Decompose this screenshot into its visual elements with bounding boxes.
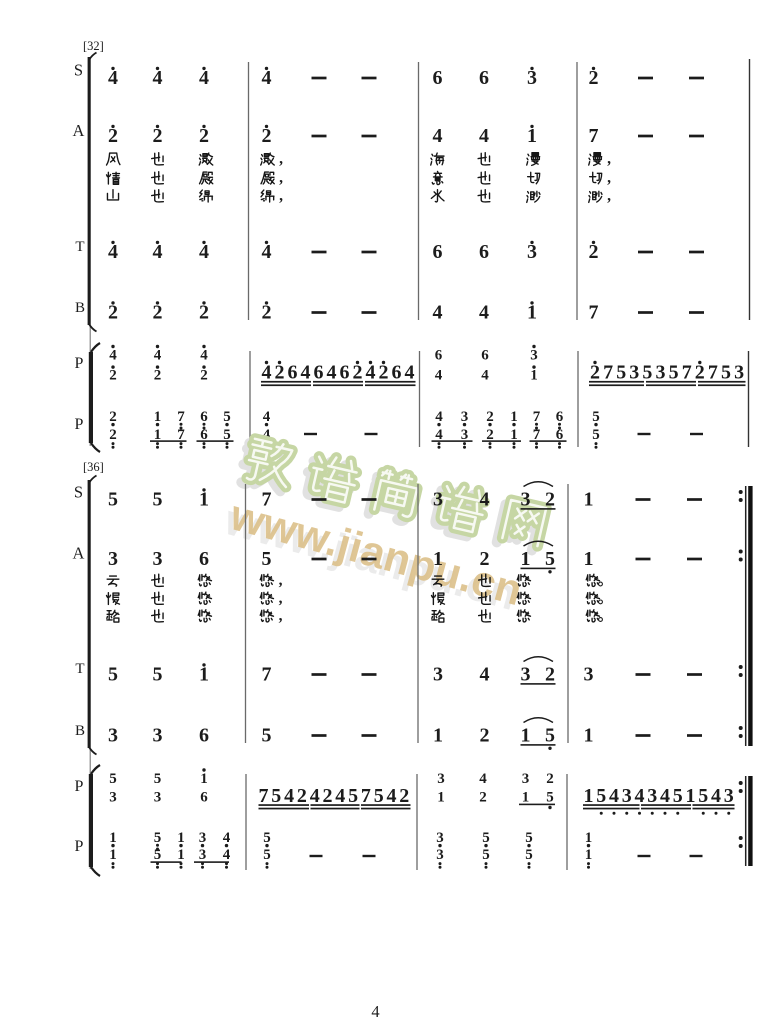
svg-text:7: 7 xyxy=(177,409,185,425)
svg-text:5: 5 xyxy=(153,664,163,686)
svg-text:5: 5 xyxy=(698,785,708,807)
svg-text:4: 4 xyxy=(371,1002,379,1021)
svg-text:2: 2 xyxy=(546,771,554,787)
svg-text:,: , xyxy=(279,170,283,187)
svg-text:2: 2 xyxy=(154,367,162,383)
svg-text:6: 6 xyxy=(199,548,209,570)
svg-text:B: B xyxy=(75,723,85,739)
svg-text:1: 1 xyxy=(177,830,185,846)
svg-text:,: , xyxy=(607,188,611,205)
svg-text:2: 2 xyxy=(199,302,209,324)
svg-text:3: 3 xyxy=(521,489,531,511)
svg-text:5: 5 xyxy=(592,427,600,443)
svg-text:5: 5 xyxy=(154,771,162,787)
svg-text:5: 5 xyxy=(262,548,272,570)
svg-text:7: 7 xyxy=(262,664,272,686)
svg-text:5: 5 xyxy=(525,847,533,863)
svg-text:1: 1 xyxy=(521,725,531,747)
svg-text:2: 2 xyxy=(108,125,118,147)
svg-text:2: 2 xyxy=(480,725,490,747)
svg-text:4: 4 xyxy=(153,241,163,263)
svg-text:6: 6 xyxy=(200,790,208,806)
svg-text:7: 7 xyxy=(262,489,272,511)
svg-text:S: S xyxy=(74,483,83,502)
svg-text:3: 3 xyxy=(521,664,531,686)
svg-text:,: , xyxy=(607,170,611,187)
svg-text:1: 1 xyxy=(109,847,117,863)
svg-text:5: 5 xyxy=(592,409,600,425)
svg-text:1: 1 xyxy=(177,847,185,863)
svg-text:2: 2 xyxy=(695,362,705,384)
svg-text:4: 4 xyxy=(660,785,670,807)
svg-text:2: 2 xyxy=(399,785,409,807)
svg-text:4: 4 xyxy=(108,67,118,89)
svg-text:[32]: [32] xyxy=(83,39,104,53)
svg-text:5: 5 xyxy=(669,362,679,384)
svg-text:5: 5 xyxy=(721,362,731,384)
svg-text:1: 1 xyxy=(585,847,593,863)
svg-text:5: 5 xyxy=(673,785,683,807)
svg-text:5: 5 xyxy=(154,847,162,863)
svg-text:3: 3 xyxy=(622,785,632,807)
svg-text:3: 3 xyxy=(734,362,744,384)
svg-text:7: 7 xyxy=(708,362,718,384)
svg-text:4: 4 xyxy=(262,241,272,263)
svg-text:2: 2 xyxy=(590,362,600,384)
svg-text:2: 2 xyxy=(589,67,599,89)
svg-text:1: 1 xyxy=(584,785,594,807)
svg-text:3: 3 xyxy=(724,785,734,807)
svg-text:3: 3 xyxy=(154,790,162,806)
svg-text:4: 4 xyxy=(223,830,231,846)
svg-text:1: 1 xyxy=(527,125,537,147)
svg-text:7: 7 xyxy=(361,785,371,807)
svg-text:4: 4 xyxy=(435,409,443,425)
svg-text:4: 4 xyxy=(263,409,271,425)
svg-text:3: 3 xyxy=(656,362,666,384)
svg-text:2: 2 xyxy=(153,125,163,147)
svg-text:4: 4 xyxy=(479,302,489,324)
svg-text:1: 1 xyxy=(433,548,443,570)
svg-text:4: 4 xyxy=(480,664,490,686)
svg-text:2: 2 xyxy=(109,367,117,383)
svg-text:1: 1 xyxy=(584,548,594,570)
svg-text:3: 3 xyxy=(108,548,118,570)
svg-text:5: 5 xyxy=(263,830,271,846)
svg-text:5: 5 xyxy=(616,362,626,384)
svg-text:3: 3 xyxy=(522,771,530,787)
svg-text:3: 3 xyxy=(527,67,537,89)
svg-text:4: 4 xyxy=(199,241,209,263)
svg-text:3: 3 xyxy=(199,847,207,863)
svg-text:6: 6 xyxy=(199,725,209,747)
svg-text:1: 1 xyxy=(199,489,209,511)
svg-text:5: 5 xyxy=(545,725,555,747)
svg-text:B: B xyxy=(75,300,85,316)
svg-text:1: 1 xyxy=(522,790,530,806)
svg-text:3: 3 xyxy=(647,785,657,807)
svg-text:5: 5 xyxy=(482,830,490,846)
svg-text:2: 2 xyxy=(479,790,487,806)
svg-text:4: 4 xyxy=(284,785,294,807)
svg-text:2: 2 xyxy=(200,367,208,383)
svg-text:4: 4 xyxy=(405,362,415,384)
svg-text:4: 4 xyxy=(481,367,489,383)
svg-text:6: 6 xyxy=(288,362,298,384)
svg-text:1: 1 xyxy=(585,830,593,846)
svg-text:4: 4 xyxy=(108,241,118,263)
svg-text:5: 5 xyxy=(153,489,163,511)
svg-text:4: 4 xyxy=(223,847,231,863)
svg-text:2: 2 xyxy=(262,302,272,324)
svg-text:3: 3 xyxy=(433,489,443,511)
svg-text:3: 3 xyxy=(629,362,639,384)
svg-text:2: 2 xyxy=(589,241,599,263)
svg-text:1: 1 xyxy=(199,664,209,686)
svg-text:4: 4 xyxy=(609,785,619,807)
svg-text:1: 1 xyxy=(437,790,445,806)
svg-text:A: A xyxy=(73,121,85,140)
svg-text:6: 6 xyxy=(481,348,489,364)
svg-text:2: 2 xyxy=(379,362,389,384)
svg-text:2: 2 xyxy=(109,427,117,443)
svg-text:6: 6 xyxy=(392,362,402,384)
svg-text:1: 1 xyxy=(200,771,208,787)
svg-text:3: 3 xyxy=(153,725,163,747)
svg-text:,: , xyxy=(279,188,283,205)
svg-text:2: 2 xyxy=(353,362,363,384)
svg-text:T: T xyxy=(75,239,84,255)
svg-text:2: 2 xyxy=(323,785,333,807)
svg-text:,: , xyxy=(279,151,283,168)
svg-text:4: 4 xyxy=(479,771,487,787)
svg-text:4: 4 xyxy=(109,348,117,364)
svg-text:3: 3 xyxy=(584,664,594,686)
svg-text:5: 5 xyxy=(108,664,118,686)
svg-text:P: P xyxy=(75,355,84,372)
svg-text:6: 6 xyxy=(433,241,443,263)
svg-text:7: 7 xyxy=(533,409,541,425)
svg-text:3: 3 xyxy=(461,409,469,425)
svg-text:4: 4 xyxy=(301,362,311,384)
svg-text:3: 3 xyxy=(530,348,538,364)
svg-text:4: 4 xyxy=(435,367,443,383)
svg-text:7: 7 xyxy=(259,785,269,807)
svg-text:4: 4 xyxy=(479,125,489,147)
svg-text:5: 5 xyxy=(642,362,652,384)
svg-text:5: 5 xyxy=(546,790,554,806)
svg-text:6: 6 xyxy=(340,362,350,384)
svg-text:,: , xyxy=(279,572,283,589)
svg-text:2: 2 xyxy=(545,664,555,686)
svg-text:2: 2 xyxy=(486,409,494,425)
svg-text:2: 2 xyxy=(275,362,285,384)
svg-text:4: 4 xyxy=(335,785,345,807)
svg-text:6: 6 xyxy=(200,409,208,425)
svg-text:1: 1 xyxy=(109,830,117,846)
svg-text:2: 2 xyxy=(199,125,209,147)
svg-text:5: 5 xyxy=(223,409,231,425)
svg-text:7: 7 xyxy=(682,362,692,384)
svg-text:4: 4 xyxy=(310,785,320,807)
svg-text:4: 4 xyxy=(711,785,721,807)
svg-text:3: 3 xyxy=(153,548,163,570)
svg-text:4: 4 xyxy=(154,348,162,364)
svg-text:1: 1 xyxy=(530,367,538,383)
svg-text:2: 2 xyxy=(545,489,555,511)
svg-text:4: 4 xyxy=(199,67,209,89)
svg-text:4: 4 xyxy=(480,489,490,511)
svg-text:4: 4 xyxy=(262,362,272,384)
svg-text:3: 3 xyxy=(433,664,443,686)
svg-text:4: 4 xyxy=(433,125,443,147)
svg-text:S: S xyxy=(74,61,83,80)
svg-text:4: 4 xyxy=(153,67,163,89)
svg-text:P: P xyxy=(75,838,84,855)
svg-text:P: P xyxy=(75,778,84,795)
svg-text:1: 1 xyxy=(510,409,518,425)
svg-text:6: 6 xyxy=(479,241,489,263)
svg-text:3: 3 xyxy=(436,847,444,863)
svg-text:1: 1 xyxy=(154,409,162,425)
svg-text:[36]: [36] xyxy=(83,460,104,474)
svg-text:5: 5 xyxy=(596,785,606,807)
svg-text:1: 1 xyxy=(527,302,537,324)
svg-text:3: 3 xyxy=(199,830,207,846)
svg-text:7: 7 xyxy=(589,125,599,147)
svg-text:5: 5 xyxy=(525,830,533,846)
svg-text:,: , xyxy=(607,151,611,168)
svg-text:5: 5 xyxy=(545,548,555,570)
svg-text:3: 3 xyxy=(527,241,537,263)
svg-text:5: 5 xyxy=(262,725,272,747)
svg-text:1: 1 xyxy=(584,489,594,511)
svg-text:5: 5 xyxy=(271,785,281,807)
svg-text:5: 5 xyxy=(263,847,271,863)
svg-text:5: 5 xyxy=(348,785,358,807)
svg-text:T: T xyxy=(75,661,84,677)
svg-text:,: , xyxy=(279,608,283,625)
svg-text:4: 4 xyxy=(366,362,376,384)
svg-text:3: 3 xyxy=(437,771,445,787)
svg-text:1: 1 xyxy=(584,725,594,747)
svg-text:3: 3 xyxy=(109,790,117,806)
svg-text:4: 4 xyxy=(327,362,337,384)
svg-text:2: 2 xyxy=(297,785,307,807)
svg-text:4: 4 xyxy=(433,302,443,324)
svg-text:2: 2 xyxy=(480,548,490,570)
svg-text:4: 4 xyxy=(262,67,272,89)
svg-text:5: 5 xyxy=(374,785,384,807)
svg-text:7: 7 xyxy=(589,302,599,324)
svg-text:5: 5 xyxy=(109,771,117,787)
svg-text:2: 2 xyxy=(262,125,272,147)
svg-text:5: 5 xyxy=(154,830,162,846)
svg-text:A: A xyxy=(73,544,85,563)
svg-text:6: 6 xyxy=(556,409,564,425)
svg-text:2: 2 xyxy=(153,302,163,324)
svg-text:3: 3 xyxy=(436,830,444,846)
svg-text:4: 4 xyxy=(387,785,397,807)
svg-text:7: 7 xyxy=(603,362,613,384)
svg-text:5: 5 xyxy=(482,847,490,863)
svg-text:2: 2 xyxy=(108,302,118,324)
svg-text:1: 1 xyxy=(521,548,531,570)
svg-text:5: 5 xyxy=(108,489,118,511)
svg-text:1: 1 xyxy=(433,725,443,747)
svg-text:,: , xyxy=(279,590,283,607)
svg-text:4: 4 xyxy=(635,785,645,807)
svg-text:6: 6 xyxy=(314,362,324,384)
svg-text:2: 2 xyxy=(109,409,117,425)
svg-text:6: 6 xyxy=(435,348,443,364)
svg-text:6: 6 xyxy=(433,67,443,89)
svg-text:P: P xyxy=(75,416,84,433)
svg-text:3: 3 xyxy=(108,725,118,747)
svg-text:6: 6 xyxy=(479,67,489,89)
svg-text:1: 1 xyxy=(686,785,696,807)
svg-text:4: 4 xyxy=(200,348,208,364)
